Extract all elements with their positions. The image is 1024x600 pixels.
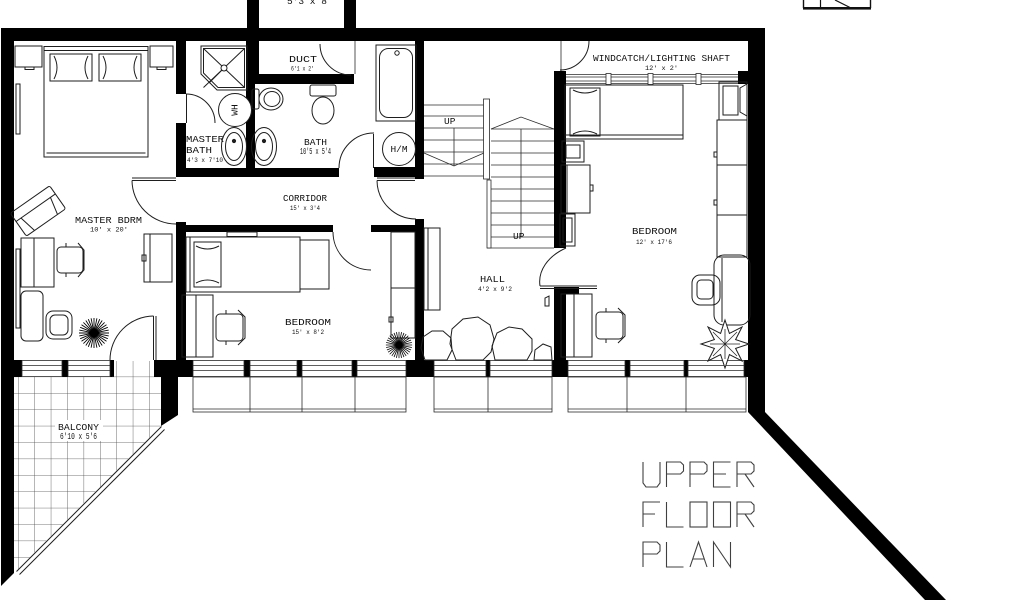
svg-text:12' x 17'6: 12' x 17'6: [636, 239, 672, 246]
svg-text:10'5 x 5'4: 10'5 x 5'4: [300, 146, 331, 157]
svg-text:6'10 x 5'6: 6'10 x 5'6: [60, 431, 97, 442]
svg-text:CORRIDOR: CORRIDOR: [283, 193, 327, 204]
svg-text:BATH: BATH: [186, 145, 212, 156]
svg-text:DUCT: DUCT: [289, 54, 317, 65]
svg-text:UP: UP: [444, 116, 456, 127]
svg-text:BEDROOM: BEDROOM: [632, 226, 677, 237]
svg-text:5'3 x 8: 5'3 x 8: [287, 0, 327, 7]
svg-text:H/M: H/M: [390, 144, 407, 155]
svg-text:WH: WH: [230, 104, 241, 115]
svg-text:15' x 8'2: 15' x 8'2: [292, 329, 324, 336]
svg-text:4'2 x 9'2: 4'2 x 9'2: [478, 286, 512, 293]
svg-text:MASTER: MASTER: [186, 134, 224, 145]
svg-text:UP: UP: [513, 231, 525, 242]
svg-text:12' x 2': 12' x 2': [645, 65, 678, 72]
svg-text:HALL: HALL: [480, 274, 505, 285]
svg-text:10' x 20': 10' x 20': [90, 227, 128, 234]
svg-text:15' x 3'4: 15' x 3'4: [290, 205, 320, 212]
svg-text:BEDROOM: BEDROOM: [285, 317, 331, 328]
svg-text:6'1 x 2': 6'1 x 2': [291, 66, 314, 73]
svg-text:4'3 x 7'10: 4'3 x 7'10: [187, 157, 223, 164]
svg-text:WINDCATCH/LIGHTING SHAFT: WINDCATCH/LIGHTING SHAFT: [593, 53, 730, 64]
svg-text:MASTER BDRM: MASTER BDRM: [75, 215, 142, 226]
